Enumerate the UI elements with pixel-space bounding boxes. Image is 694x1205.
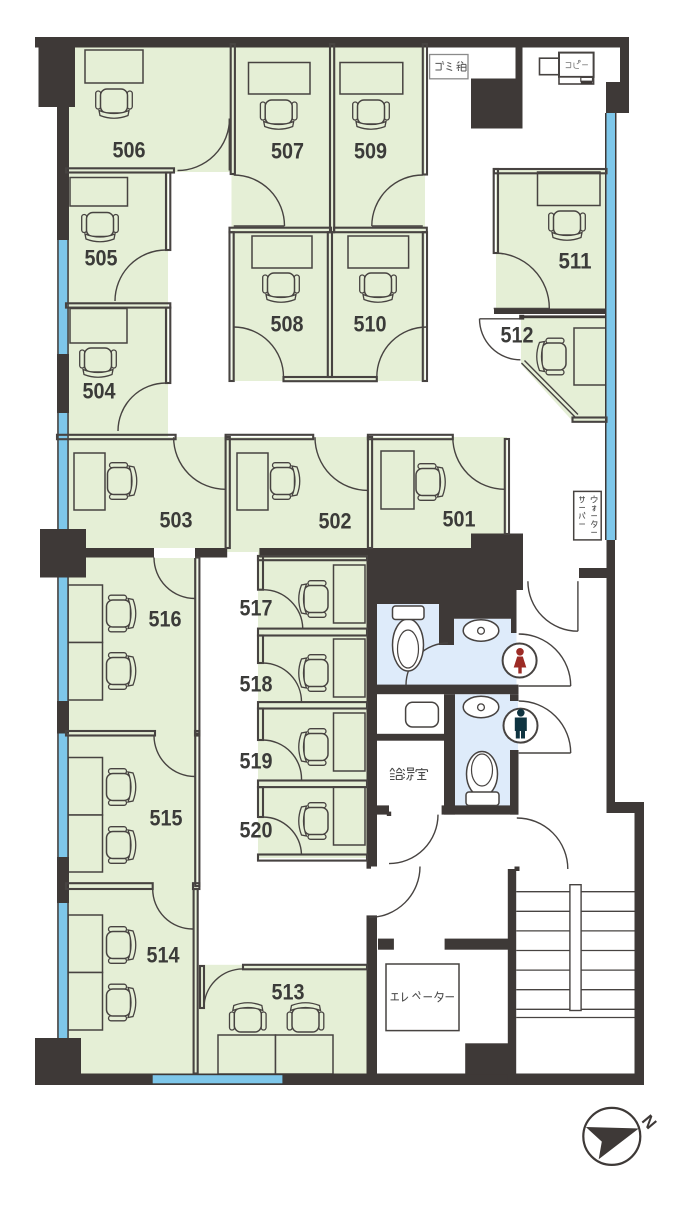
svg-text:520: 520	[240, 818, 273, 843]
svg-text:516: 516	[149, 607, 182, 632]
svg-text:513: 513	[272, 980, 305, 1005]
svg-text:509: 509	[354, 139, 387, 164]
svg-text:514: 514	[147, 943, 180, 968]
svg-text:501: 501	[443, 507, 476, 532]
svg-text:502: 502	[319, 509, 352, 534]
svg-text:508: 508	[271, 312, 304, 337]
svg-text:510: 510	[354, 312, 387, 337]
svg-text:519: 519	[240, 749, 273, 774]
svg-text:518: 518	[240, 672, 273, 697]
svg-text:515: 515	[150, 806, 183, 831]
svg-text:504: 504	[83, 379, 116, 404]
svg-text:512: 512	[501, 323, 534, 348]
svg-text:506: 506	[113, 138, 146, 163]
svg-text:507: 507	[271, 139, 304, 164]
svg-text:505: 505	[85, 246, 118, 271]
svg-text:503: 503	[160, 508, 193, 533]
svg-text:511: 511	[559, 249, 592, 274]
svg-text:517: 517	[240, 596, 273, 621]
